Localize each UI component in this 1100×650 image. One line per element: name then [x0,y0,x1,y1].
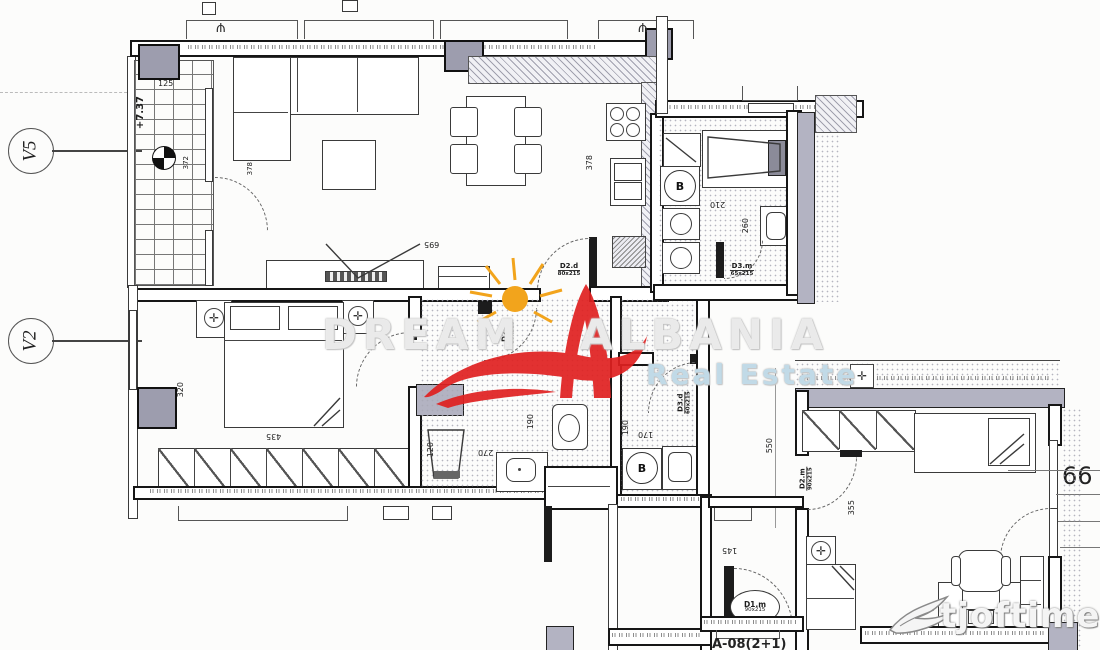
bedroom-door-leaf [408,330,417,340]
window-sill-bracket [742,86,798,101]
single-bed [806,564,856,630]
wall-dimension-ticks [612,633,702,637]
window-tag-v2: V2 [8,318,54,364]
sink-drain [518,468,521,471]
dim-balcony-door: 378 [247,162,254,175]
blanket-line [224,340,342,341]
elevation-label: +7.37 [136,96,146,129]
dim-wardrobe: 435 [266,432,281,440]
sofa-chaise-line [234,112,288,113]
stove-burner [610,107,624,121]
entry-mat-line [548,486,610,487]
bench-line [439,276,487,277]
balcony-window-lower [205,230,213,286]
wardrobe-divider [839,411,840,449]
light-symbol: ✛ [811,541,831,561]
bedroom-door-arc [356,332,411,387]
desk-keyboard [968,610,994,624]
dim-living: 695 [424,240,439,248]
sill-box [432,506,452,520]
dim-bath1-depth: 260 [742,218,750,233]
window-tag-v5-label: V5 [20,140,42,161]
dim-bath2-depth: 190 [527,414,535,429]
door-label-living-hall: D2.d 80x215 [547,262,591,277]
vent-symbol: Ψ [638,20,647,34]
sill-box [383,506,409,520]
bottom-wall [608,628,712,646]
door-label-bath1: D3.m 65x215 [722,262,762,277]
chair [450,107,478,137]
window-sill-bracket [304,20,434,39]
stove-burner [610,123,624,137]
kitchen-sink-basin [614,182,642,200]
toilet-bowl [558,414,580,442]
blanket-line [806,598,854,599]
apartment2-bottom-wall [860,626,1054,644]
wall-insulation-dots [815,134,839,302]
dim-bath2-width: 270 [478,448,493,456]
boiler-label: B [638,462,646,475]
chair [514,144,542,174]
boiler: B [626,452,658,484]
riser-box [202,2,216,15]
toilet-bowl [670,247,692,269]
dim-entry: 145 [722,546,737,554]
window-sill-bracket [714,508,752,521]
bidet-bowl [670,213,692,235]
tv-unit [325,271,387,282]
dim-corridor: 550 [766,438,774,453]
door-size: 60x215 [685,391,691,414]
dim-bedroom2: 355 [848,500,856,515]
hall-sink-basin [668,452,692,482]
wall-block [546,626,574,650]
bedroom-window [129,310,137,390]
balcony2-door [1049,508,1058,560]
dim-kitchen: 378 [586,155,594,170]
boiler-label: B [676,180,684,193]
cabinet-shelf-line [1021,604,1041,605]
stove-burner [626,107,640,121]
wardrobe-divider [876,411,877,449]
pillow [288,306,338,330]
pillow [230,306,280,330]
dim-bath1-width: 210 [710,200,725,208]
balcony-floor [134,60,214,286]
party-wall [797,112,815,304]
riser-box [342,0,358,12]
wall-dimension-ticks [865,631,1045,635]
door-label-bedroom2: D2.m 90x215 [798,457,813,501]
kitchen-sink-basin [614,163,642,181]
door-name: D3.m [730,262,755,271]
bath1-shower [663,133,701,167]
dim-bedroom-window: 320 [177,382,185,397]
desk-chair [958,550,1004,592]
apartment2-right-wall [1048,556,1062,630]
entry-mat [544,466,618,510]
corridor-top-wall [708,496,804,508]
side-cabinet [1020,556,1044,630]
neighbor-hatch-wall [815,95,857,133]
chair-armrest [951,556,961,586]
sink-basin [766,212,786,240]
door-size: 80x215 [509,321,515,344]
wall-stub [544,506,552,562]
bath2-door-leaf [478,302,492,314]
coffee-table [322,140,376,190]
door-size: 90x215 [745,608,766,614]
door-name: D2.d [558,262,580,271]
fridge [612,236,646,268]
wall-dimension-ticks [704,620,796,624]
balcony-door-arc [215,177,268,231]
bedroom2-door-leaf [840,450,862,457]
door-name: D2.d [500,322,509,344]
leader-line [1008,470,1100,471]
dim-balcony-width: 125 [158,80,173,88]
wall-block [1048,622,1078,650]
bathtub-headrest [768,140,786,176]
light-symbol: ✛ [850,364,874,388]
door-size: 80x215 [558,271,581,277]
wall-dimension-ticks [800,376,1050,380]
dim-hall-depth: 170 [638,430,653,438]
dim-hall-width: 190 [622,420,630,435]
balcony2-door-arc [1000,508,1051,559]
apartment2-top-wall [795,388,1065,408]
floor-plan: V5 V2 +7.37 125 372 Ψ Ψ 378 695 [0,0,1100,650]
dim-balcony-length: 372 [183,156,190,169]
pillow [988,418,1030,466]
vent-symbol: Ψ [216,20,225,34]
boiler: B [664,170,696,202]
window-sill-bracket [178,506,348,521]
light-symbol: ✛ [204,308,224,328]
dim-shower: 120 [427,442,435,457]
hall-wall-stub [618,352,654,366]
column [138,44,180,80]
wall-dimension-ticks [614,497,702,501]
chair [450,144,478,174]
band-line [795,360,1060,361]
balcony-window-upper [205,88,213,182]
light-symbol: ✛ [348,306,368,326]
window-sill-bracket [440,20,568,39]
wardrobe-cell [876,410,914,450]
sink-basin [506,458,536,482]
door-label-hall: D3.d 60x215 [676,381,691,425]
window-tag-v2-label: V2 [20,330,42,351]
elevation-marker [152,146,176,170]
bench [438,266,490,290]
door-name: D3.d [676,392,685,414]
sofa-chaise [233,57,291,161]
sofa-cushion-line [357,58,358,112]
wardrobe-cell [839,410,876,450]
unit-code: A-08(2+1) [712,638,786,650]
wardrobe-cell [802,410,839,450]
wall-dimension-ticks [188,45,596,49]
cabinet-shelf-line [1021,580,1041,581]
stove-burner [626,123,640,137]
column [137,387,177,429]
door-label-bath2: D2.d 80x215 [500,311,515,355]
leader-dash-line [0,92,132,93]
chair-armrest [1001,556,1011,586]
sofa-cushion-line [297,58,298,112]
wall-band-dots [795,362,1060,388]
neighbor-wall [656,16,668,114]
chair [514,107,542,137]
door-name: D2.m [798,466,807,491]
wall-insulation-dots [1062,408,1082,648]
door-size: 90x215 [807,467,813,490]
kitchen-counter-hatch [468,56,658,84]
apartment2-window [1049,440,1058,510]
window-tag-v5: V5 [8,128,54,174]
window-sill-bracket [186,20,298,39]
hall-right-wall [696,296,710,508]
door-size: 65x215 [731,271,754,277]
